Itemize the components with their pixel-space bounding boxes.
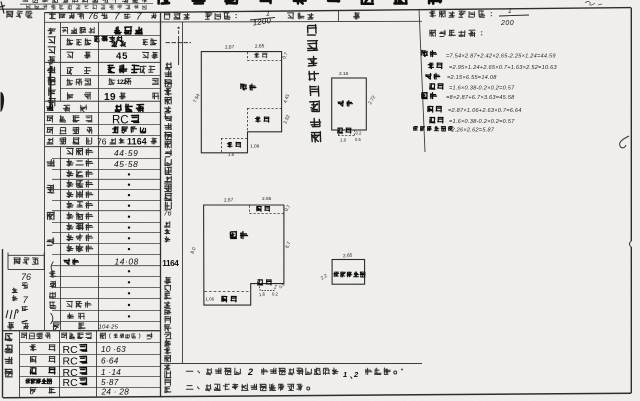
svg-text:7: 7	[23, 295, 29, 306]
svg-text:=2.15×6.55=14.08: =2.15×6.55=14.08	[447, 75, 497, 81]
svg-text:2.65: 2.65	[262, 196, 272, 202]
svg-text:76: 76	[164, 209, 172, 218]
svg-text:1: 1	[343, 370, 347, 379]
svg-text:1.6: 1.6	[228, 152, 235, 157]
svg-text:76: 76	[21, 272, 31, 282]
svg-text:=2.26×2.62=5.87: =2.26×2.62=5.87	[448, 128, 495, 134]
svg-text:104·25: 104·25	[99, 325, 119, 331]
svg-text:2.65: 2.65	[255, 43, 265, 50]
svg-text:0.2: 0.2	[272, 292, 278, 297]
svg-text:1164: 1164	[162, 259, 179, 268]
svg-text:2.87: 2.87	[225, 44, 235, 51]
svg-text:2.15: 2.15	[339, 71, 349, 77]
svg-text:0.5: 0.5	[355, 137, 361, 142]
svg-text:10 ·63: 10 ·63	[101, 345, 126, 354]
svg-text:45·58: 45·58	[114, 159, 138, 169]
svg-text:24 · 28: 24 · 28	[101, 388, 130, 397]
svg-text:=2.87×1.06+2.63×0.7=6.64: =2.87×1.06+2.63×0.7=6.64	[448, 108, 522, 114]
svg-text:1 ·14: 1 ·14	[101, 368, 121, 377]
svg-text:7: 7	[114, 12, 120, 23]
svg-text:2: 2	[353, 370, 359, 379]
svg-text:6·64: 6·64	[101, 357, 119, 366]
svg-text:=2.95×1.24+2.65×0.7+1.63×2.52=: =2.95×1.24+2.65×0.7+1.63×2.52=10.63	[449, 65, 557, 71]
svg-text:44·59: 44·59	[114, 148, 138, 158]
svg-text:1.06: 1.06	[206, 297, 215, 302]
svg-text:0.2: 0.2	[356, 131, 362, 136]
svg-text:2.87: 2.87	[224, 197, 234, 204]
svg-text:76: 76	[88, 11, 98, 21]
svg-text:=8×2.87+6.7×3.63=45.58: =8×2.87+6.7×3.63=45.58	[446, 95, 515, 101]
svg-text:200: 200	[500, 20, 514, 27]
svg-text:1: 1	[508, 8, 512, 15]
svg-text:=7.54×2.87+2.42×2.65-2.25×1.24: =7.54×2.87+2.42×2.65-2.25×1.24=44.59	[446, 54, 556, 60]
svg-text:=1.6×0.38-0.2×0.2=0.57: =1.6×0.38-0.2×0.2=0.57	[449, 86, 515, 92]
svg-text:7: 7	[136, 12, 142, 23]
svg-text:5·87: 5·87	[101, 378, 119, 387]
svg-text:14·08: 14·08	[115, 257, 139, 267]
svg-text:76: 76	[97, 137, 107, 147]
svg-text:1164: 1164	[127, 137, 147, 147]
svg-text:2: 2	[247, 367, 253, 377]
svg-text:RC: RC	[63, 356, 79, 368]
svg-text:1.6: 1.6	[340, 138, 347, 143]
svg-text:=1.6×0.38-0.2×0.2=0.57: =1.6×0.38-0.2×0.2=0.57	[449, 119, 515, 125]
svg-text:1.09: 1.09	[250, 144, 260, 150]
svg-text:2.65: 2.65	[343, 252, 353, 259]
svg-text:45: 45	[116, 51, 128, 62]
